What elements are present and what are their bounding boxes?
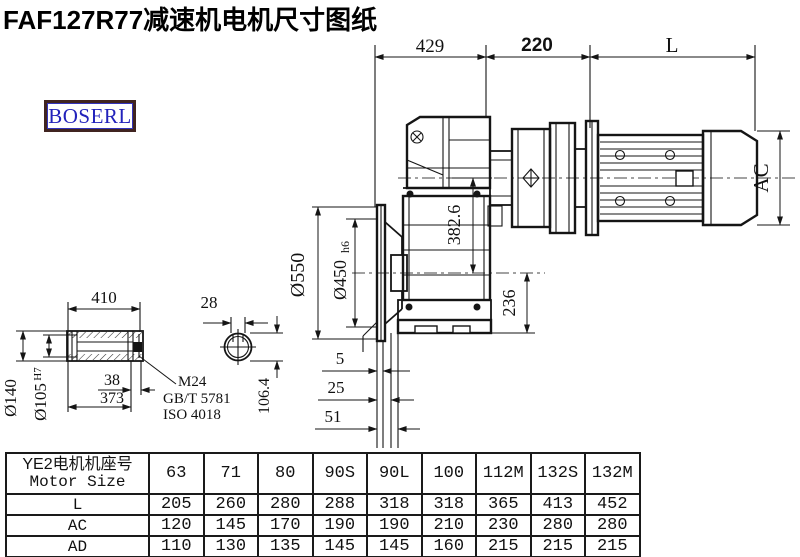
column-header: 132S: [531, 453, 586, 494]
dim-1064-label: 106.4: [256, 378, 273, 414]
standard-iso-label: ISO 4018: [163, 407, 221, 423]
table-row: L205260280288318318365413452: [6, 494, 640, 515]
table-cell: 215: [476, 536, 531, 557]
dim-373-label: 373: [100, 390, 124, 407]
table-cell: 288: [313, 494, 368, 515]
table-cell: 210: [422, 515, 477, 536]
top-dimension-chain: 429 220 L: [375, 33, 755, 207]
terminal-box: [676, 171, 693, 186]
main-view-dimensions: Ø550 Ø450 h6 382.6 236 AC 5 25: [287, 131, 790, 429]
header-line-cn: YE2电机机座号: [7, 456, 148, 474]
table-cell: 145: [367, 536, 422, 557]
column-header: 63: [149, 453, 204, 494]
column-header: 100: [422, 453, 477, 494]
table-row: AD110130135145145160215215215: [6, 536, 640, 557]
dim-25-label: 25: [328, 378, 345, 397]
table-cell: 280: [531, 515, 586, 536]
table-cell: 135: [258, 536, 313, 557]
column-header: 71: [204, 453, 259, 494]
table-cell: 130: [204, 536, 259, 557]
header-line-en: Motor Size: [7, 474, 148, 491]
dim-L-label: L: [666, 33, 679, 57]
table-cell: 170: [258, 515, 313, 536]
table-cell: 280: [258, 494, 313, 515]
dim-28-label: 28: [201, 293, 218, 312]
table-cell: 413: [531, 494, 586, 515]
column-header: 112M: [476, 453, 531, 494]
dim-220-label: 220: [521, 35, 553, 56]
table-cell: 145: [313, 536, 368, 557]
table-cell: 215: [585, 536, 640, 557]
dim-spigot-tolerance-label: h6: [338, 241, 352, 253]
table-cell: 365: [476, 494, 531, 515]
dim-flange-od-label: Ø550: [287, 253, 309, 297]
row-label: L: [6, 494, 149, 515]
dim-105-label: Ø105: [31, 383, 50, 421]
column-header: 90S: [313, 453, 368, 494]
dim-382-label: 382.6: [444, 205, 464, 246]
shaft-detail: 410 Ø140 Ø105 H7: [1, 288, 231, 423]
dim-410-label: 410: [91, 288, 117, 307]
motor-size-table-body: YE2电机机座号Motor Size63718090S90L100112M132…: [6, 453, 640, 557]
page: FAF127R77减速机电机尺寸图纸 BOSERL 429 220 L: [0, 0, 800, 557]
table-cell: 215: [531, 536, 586, 557]
dim-429-label: 429: [416, 36, 445, 57]
thread-callout: M24: [178, 374, 207, 390]
dim-5-label: 5: [336, 349, 345, 368]
standard-gbt-label: GB/T 5781: [163, 391, 231, 407]
dim-140-label: Ø140: [1, 379, 20, 417]
row-label: AD: [6, 536, 149, 557]
dim-51-label: 51: [325, 407, 342, 426]
dim-236-label: 236: [499, 290, 519, 317]
table-cell: 160: [422, 536, 477, 557]
table-cell: 318: [422, 494, 477, 515]
table-cell: 120: [149, 515, 204, 536]
table-header-motor-size: YE2电机机座号Motor Size: [6, 453, 149, 494]
column-header: 132M: [585, 453, 640, 494]
table-cell: 145: [204, 515, 259, 536]
dim-105-tolerance-label: H7: [32, 367, 44, 381]
table-row: AC120145170190190210230280280: [6, 515, 640, 536]
table-cell: 230: [476, 515, 531, 536]
dim-38-label: 38: [104, 372, 120, 389]
table-cell: 110: [149, 536, 204, 557]
dim-spigot-label: Ø450: [330, 260, 350, 300]
table-cell: 452: [585, 494, 640, 515]
row-label: AC: [6, 515, 149, 536]
column-header: 80: [258, 453, 313, 494]
technical-drawing: 429 220 L: [0, 0, 800, 452]
column-header: 90L: [367, 453, 422, 494]
motor-size-table: YE2电机机座号Motor Size63718090S90L100112M132…: [5, 452, 641, 557]
table-cell: 318: [367, 494, 422, 515]
table-cell: 260: [204, 494, 259, 515]
table-cell: 205: [149, 494, 204, 515]
table-cell: 280: [585, 515, 640, 536]
table-cell: 190: [367, 515, 422, 536]
dim-ac-label: AC: [749, 163, 773, 192]
table-cell: 190: [313, 515, 368, 536]
